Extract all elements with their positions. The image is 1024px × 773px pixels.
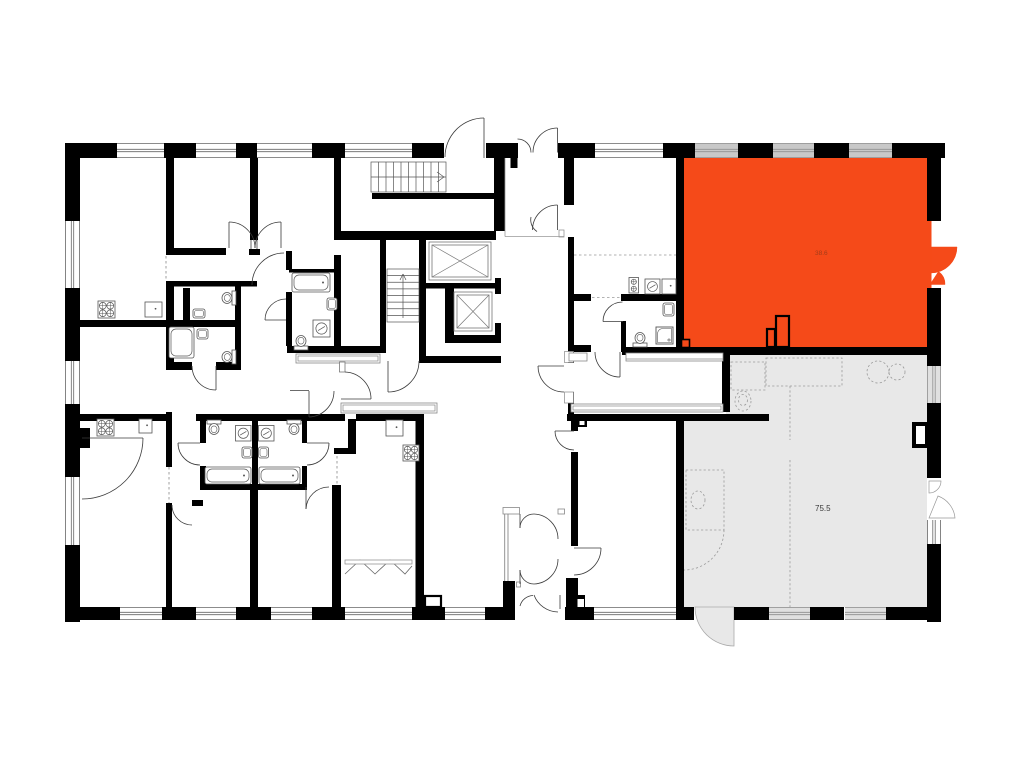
svg-text:38.6: 38.6 — [815, 250, 828, 257]
svg-text:75.5: 75.5 — [815, 504, 831, 513]
